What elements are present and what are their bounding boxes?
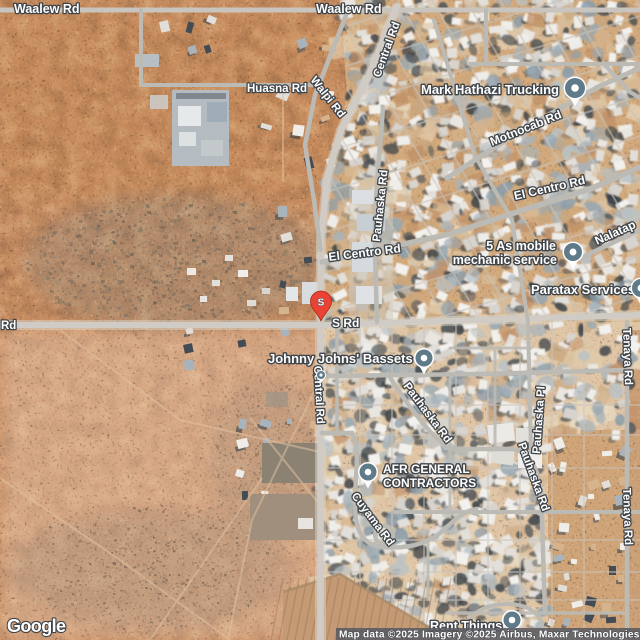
svg-text:Huasna Rd: Huasna Rd xyxy=(247,83,307,95)
svg-text:Rd: Rd xyxy=(1,320,16,332)
svg-text:S: S xyxy=(318,298,325,309)
svg-text:Mark Hathazi Trucking: Mark Hathazi Trucking xyxy=(421,82,559,97)
svg-text:Paratax Services: Paratax Services xyxy=(531,282,635,297)
svg-text:Tenaya Rd: Tenaya Rd xyxy=(620,488,634,546)
svg-text:Waalew Rd: Waalew Rd xyxy=(14,2,80,16)
svg-text:Waalew Rd: Waalew Rd xyxy=(316,2,382,16)
svg-text:Google: Google xyxy=(7,616,66,636)
svg-text:5 As mobile: 5 As mobile xyxy=(486,239,556,253)
svg-text:S Rd: S Rd xyxy=(332,316,359,330)
svg-text:AFR GENERAL: AFR GENERAL xyxy=(383,462,470,476)
svg-text:mechanic service: mechanic service xyxy=(453,253,557,267)
svg-text:Tenaya Rd: Tenaya Rd xyxy=(620,328,634,386)
svg-text:CONTRACTORS: CONTRACTORS xyxy=(383,476,476,490)
svg-text:Map data ©2025 Imagery ©2025 A: Map data ©2025 Imagery ©2025 Airbus, Max… xyxy=(339,630,640,640)
svg-text:Johnny Johns' Bassets: Johnny Johns' Bassets xyxy=(268,351,413,366)
